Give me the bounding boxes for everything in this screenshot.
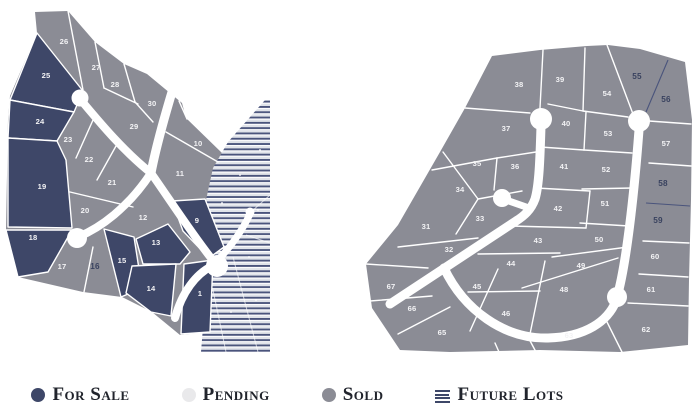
cul-de-sac bbox=[530, 108, 552, 130]
future-lot-faint-number bbox=[255, 299, 257, 301]
lot-55-label: 55 bbox=[632, 72, 642, 81]
cul-de-sac bbox=[493, 189, 511, 207]
lot-10-label: 10 bbox=[194, 139, 203, 148]
lot-33-label: 33 bbox=[476, 214, 485, 223]
subdivision-map-right: 3132333435363738394041424344454648495051… bbox=[366, 45, 692, 352]
lot-61-label: 61 bbox=[647, 285, 656, 294]
lot-59-label: 59 bbox=[653, 216, 663, 225]
future-lots-stripes-icon bbox=[435, 389, 450, 402]
future-lot-faint-number bbox=[230, 311, 232, 313]
future-lot-faint-number bbox=[257, 209, 259, 211]
lot-46-label: 46 bbox=[502, 309, 511, 318]
lot-boundary-line bbox=[478, 253, 560, 254]
lot-63-label: 63 bbox=[565, 331, 574, 340]
future-lot-faint-number bbox=[259, 149, 261, 151]
subdivision-maps: 2627283029252423222120191817161513141210… bbox=[0, 0, 700, 372]
lot-28-label: 28 bbox=[111, 80, 120, 89]
lot-15-label: 15 bbox=[118, 256, 127, 265]
lot-34-label: 34 bbox=[456, 185, 465, 194]
lot-37-label: 37 bbox=[502, 124, 511, 133]
lot-19-label: 19 bbox=[38, 182, 47, 191]
lot-45-label: 45 bbox=[473, 282, 482, 291]
lot-35-label: 35 bbox=[473, 159, 482, 168]
lot-49-label: 49 bbox=[577, 261, 586, 270]
cul-de-sac bbox=[607, 287, 627, 307]
lot-54-label: 54 bbox=[603, 89, 612, 98]
legend-label-future-lots: Future Lots bbox=[457, 384, 563, 406]
lot-67-label: 67 bbox=[387, 282, 396, 291]
lot-53-label: 53 bbox=[604, 129, 613, 138]
lot-23-label: 23 bbox=[64, 135, 73, 144]
lot-26-label: 26 bbox=[60, 37, 69, 46]
lot-48-label: 48 bbox=[560, 285, 569, 294]
lot-20-label: 20 bbox=[81, 206, 90, 215]
lot-25-label: 25 bbox=[42, 71, 51, 80]
lot-boundary-line bbox=[468, 291, 540, 292]
legend-item-sold: Sold bbox=[322, 384, 384, 406]
lot-56-label: 56 bbox=[661, 95, 671, 104]
lot-41-label: 41 bbox=[560, 162, 569, 171]
lot-29-label: 29 bbox=[130, 122, 139, 131]
lot-38-label: 38 bbox=[515, 80, 524, 89]
lot-57-label: 57 bbox=[662, 139, 671, 148]
cul-de-sac bbox=[246, 208, 255, 217]
cul-de-sac bbox=[67, 228, 87, 248]
lot-39-label: 39 bbox=[556, 75, 565, 84]
legend-item-pending: Pending bbox=[182, 384, 270, 406]
lot-1-label: 1 bbox=[198, 289, 203, 298]
cul-de-sac bbox=[206, 255, 228, 277]
lot-52-label: 52 bbox=[602, 165, 611, 174]
future-lot-faint-number bbox=[221, 202, 223, 204]
future-lot-faint-number bbox=[248, 256, 250, 258]
lot-58-label: 58 bbox=[658, 179, 668, 188]
lot-22-label: 22 bbox=[85, 155, 94, 164]
lot-boundary-line bbox=[582, 188, 633, 189]
lot-51-label: 51 bbox=[601, 199, 610, 208]
lot-18-label: 18 bbox=[29, 233, 38, 242]
lot-27-label: 27 bbox=[92, 63, 101, 72]
lot-11-label: 11 bbox=[176, 169, 185, 178]
lot-43-label: 43 bbox=[534, 236, 543, 245]
legend: For Sale Pending Sold Future Lots bbox=[0, 378, 700, 412]
lot-9-label: 9 bbox=[195, 216, 199, 225]
lot-24-label: 24 bbox=[36, 117, 45, 126]
pending-dot-icon bbox=[182, 388, 196, 402]
lot-62-label: 62 bbox=[642, 325, 651, 334]
lot-17-label: 17 bbox=[58, 262, 67, 271]
lot-60-label: 60 bbox=[651, 252, 660, 261]
lot-36-label: 36 bbox=[511, 162, 520, 171]
lot-32-label: 32 bbox=[445, 245, 454, 254]
for-sale-dot-icon bbox=[31, 388, 45, 402]
future-lot-faint-number bbox=[239, 174, 241, 176]
lot-21-label: 21 bbox=[108, 178, 117, 187]
cul-de-sac bbox=[72, 90, 89, 107]
sold-dot-icon bbox=[322, 388, 336, 402]
lot-12-label: 12 bbox=[139, 213, 148, 222]
lot-30-label: 30 bbox=[148, 99, 157, 108]
lot-40-label: 40 bbox=[562, 119, 571, 128]
legend-label-pending: Pending bbox=[203, 384, 270, 406]
lot-31-label: 31 bbox=[422, 222, 431, 231]
subdivision-map-left: 2627283029252423222120191817161513141210… bbox=[6, 11, 270, 352]
lot-42-label: 42 bbox=[554, 204, 563, 213]
legend-item-future-lots: Future Lots bbox=[435, 384, 563, 406]
legend-label-for-sale: For Sale bbox=[52, 384, 129, 406]
lot-16-label: 16 bbox=[90, 262, 100, 271]
lot-13-label: 13 bbox=[152, 238, 161, 247]
lot-14-label: 14 bbox=[147, 284, 156, 293]
legend-item-for-sale: For Sale bbox=[31, 384, 129, 406]
lot-44-label: 44 bbox=[507, 259, 516, 268]
cul-de-sac bbox=[628, 110, 650, 132]
lot-66-label: 66 bbox=[408, 304, 417, 313]
legend-label-sold: Sold bbox=[343, 384, 384, 406]
lot-65-label: 65 bbox=[438, 328, 447, 337]
lot-50-label: 50 bbox=[595, 235, 604, 244]
